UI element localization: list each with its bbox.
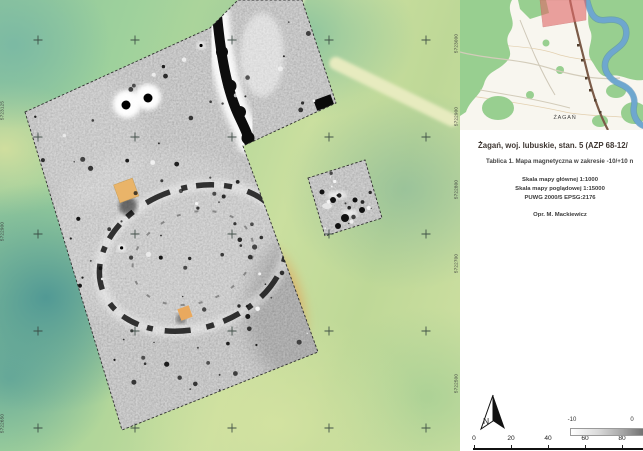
scalebar-tick-label: 0 bbox=[464, 435, 484, 442]
colorbar-tick-label: -10 bbox=[562, 417, 582, 423]
survey-area-main bbox=[0, 0, 460, 451]
north-arrow-icon bbox=[476, 392, 514, 432]
author-credit: Opr. M. Mackiewicz bbox=[470, 212, 643, 218]
scalebar-tick-label: 40 bbox=[538, 435, 558, 442]
main-magnetometry-map: 57230005722900572280057227005722500 bbox=[0, 0, 460, 451]
magnetometry-survey-layer bbox=[0, 0, 460, 451]
legend-panel: ŻAGAŃ Żagań, woj. lubuskie, stan. 5 (AZP… bbox=[460, 0, 643, 451]
nanotesla-colorbar bbox=[570, 428, 643, 436]
colorbar-tick-label: 0 bbox=[622, 417, 642, 423]
map-sheet: 57230005722900572280057227005722500 bbox=[0, 0, 643, 451]
scale-main: Skala mapy głównej 1:1000 bbox=[470, 177, 643, 183]
scalebar bbox=[473, 448, 643, 450]
sheet-title: Żagań, woj. lubuskie, stan. 5 (AZP 68-12… bbox=[478, 141, 628, 150]
scale-overview: Skala mapy poglądowej 1:15000 bbox=[470, 186, 643, 192]
crs-info: PUWG 2000/5 EPSG:2176 bbox=[470, 195, 643, 201]
sheet-subtitle: Tablica 1. Mapa magnetyczna w zakresie -… bbox=[486, 158, 633, 165]
overview-topo-map: ŻAGAŃ bbox=[460, 0, 643, 130]
scalebar-tick-label: 60 bbox=[575, 435, 595, 442]
city-label: ŻAGAŃ bbox=[554, 114, 577, 121]
scalebar-tick-label: 20 bbox=[501, 435, 521, 442]
north-label: N bbox=[483, 416, 489, 426]
scalebar-tick-label: 80 bbox=[612, 435, 632, 442]
